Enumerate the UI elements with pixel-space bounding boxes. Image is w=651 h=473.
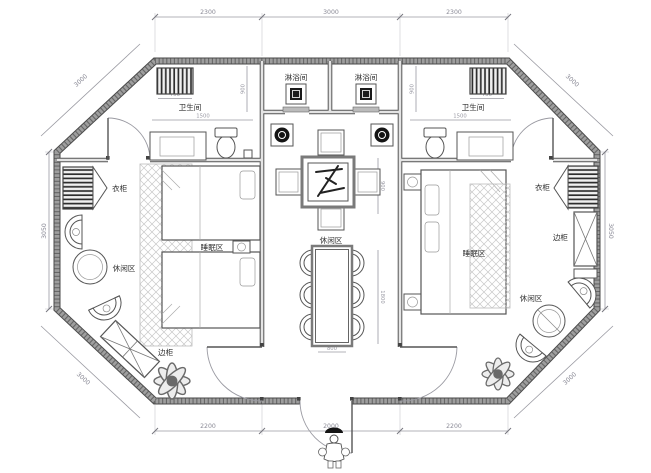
dim-label-diag-bottom-left: 3000	[75, 371, 91, 387]
room-label-bathroom-left: 卫生间	[179, 102, 202, 112]
dim-label-bath-left-width: 1500	[196, 114, 210, 120]
dim-label-bottom-left: 2200	[200, 423, 216, 430]
plant-left	[154, 363, 190, 399]
washbasin-right	[371, 124, 393, 146]
door-arc-bath-right	[511, 118, 553, 160]
square-table-group: 休闲区	[276, 130, 380, 245]
entrance-figure	[319, 428, 350, 469]
dim-label-diag-bottom-right: 3000	[562, 371, 578, 387]
wardrobe-right: 衣柜	[535, 166, 598, 209]
room-label-leisure-center: 休闲区	[320, 235, 343, 245]
nightstand-right-bottom	[404, 294, 421, 310]
floor-plan-canvas: 2300 3000 2300 2200 2000 2200 3050 3050 …	[0, 0, 651, 473]
door-arc-bath-left	[108, 118, 150, 160]
wardrobe-left: 衣柜	[63, 167, 128, 209]
table-chair-top	[318, 130, 344, 155]
dim-label-dining-length: 1800	[379, 290, 385, 304]
room-label-shower-left: 淋浴间	[285, 72, 308, 82]
room-label-sleep-right: 睡眠区	[463, 249, 486, 258]
vanity-right	[457, 132, 513, 160]
room-label-leisure-left: 休闲区	[113, 263, 136, 273]
leisure-area-left: 休闲区	[65, 215, 136, 326]
table-chair-right	[355, 169, 380, 195]
nightstand-right-top	[404, 174, 421, 190]
bed-left-2	[162, 252, 260, 328]
dim-label-diag-top-right: 3000	[564, 73, 580, 89]
shower-room-left: 淋浴间	[283, 72, 309, 112]
room-label-wardrobe-right: 衣柜	[535, 182, 551, 192]
door-arc-room-left	[207, 347, 262, 401]
shower-room-right: 淋浴间	[353, 72, 379, 112]
room-label-bathroom-right: 卫生间	[462, 102, 485, 112]
dim-label-bath-right-width: 1500	[453, 114, 467, 120]
dim-label-left: 3050	[41, 223, 48, 239]
room-label-wardrobe-left: 衣柜	[112, 183, 128, 193]
sleeping-area-right: 睡眠区	[404, 170, 510, 314]
room-label-cabinet-left: 边柜	[158, 347, 174, 357]
table-chair-bottom	[318, 206, 344, 230]
bathroom-right: 卫生间	[424, 68, 513, 160]
dim-label-top-left: 2300	[200, 9, 216, 16]
dim-label-top-middle: 3000	[323, 9, 339, 16]
lounge-chair	[65, 215, 82, 249]
toilet-right	[424, 128, 446, 158]
rug-right	[470, 184, 510, 308]
dim-label-right: 3050	[607, 223, 614, 239]
bed-left-1	[162, 166, 260, 240]
lounge-chair	[89, 296, 127, 326]
floor-plan: 2300 3000 2300 2200 2000 2200 3050 3050 …	[0, 0, 651, 473]
radiator-right	[470, 68, 506, 94]
dim-label-diag-top-left: 3000	[73, 73, 89, 89]
dining-table-group	[300, 246, 364, 346]
round-table-left	[73, 250, 107, 284]
dim-label-top-right: 2300	[446, 9, 462, 16]
side-cabinet-right: 边柜	[553, 212, 597, 278]
table-chair-left	[276, 169, 301, 195]
dim-label-bath-left-height: 900	[241, 83, 247, 94]
room-label-shower-right: 淋浴间	[355, 72, 378, 82]
room-label-cabinet-right: 边柜	[553, 232, 569, 242]
door-arc-room-right	[400, 347, 457, 401]
plant-right	[482, 358, 514, 390]
dim-label-bottom-right: 2200	[446, 423, 462, 430]
room-label-sleep-left: 睡眠区	[201, 243, 224, 252]
washbasin-left	[271, 124, 293, 146]
vanity-left	[150, 132, 206, 160]
floor-drain-left	[244, 150, 252, 158]
toilet-left	[215, 128, 237, 158]
dim-label-bath-right-height: 900	[410, 83, 416, 94]
nightstand-left	[233, 241, 250, 253]
room-label-leisure-right: 休闲区	[520, 293, 543, 303]
radiator-left	[157, 68, 193, 94]
